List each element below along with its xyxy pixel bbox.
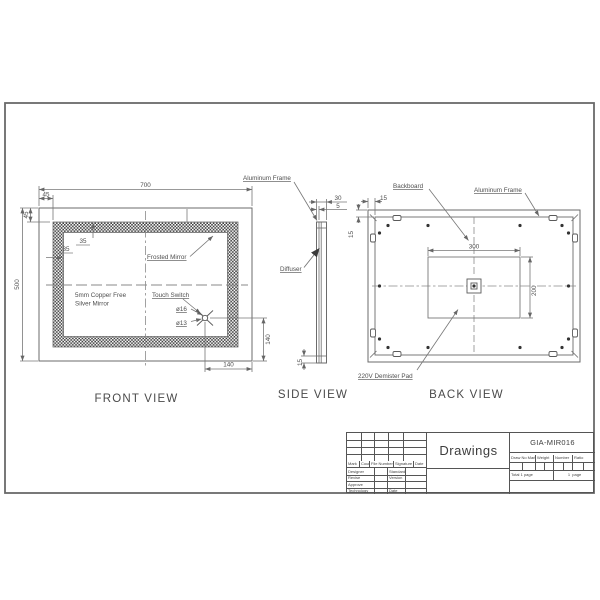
- dim-300-text: 300: [469, 244, 480, 251]
- row-designer: Designer: [347, 469, 374, 475]
- dim-140v-text: 140: [265, 334, 272, 345]
- mirror-spec-line2: Silver Mirror: [75, 301, 109, 308]
- dim-140h-text: 140: [223, 362, 234, 369]
- backboard-label: Backboard: [393, 183, 424, 190]
- diffuser-label: Diffuser: [280, 266, 302, 273]
- row-technology: Technology: [347, 488, 374, 494]
- side-aluminum-frame-leader: [294, 182, 317, 221]
- dim-45v-text: 45: [23, 211, 30, 219]
- drawings-title: Drawings: [427, 433, 510, 469]
- col-header-file-number: File Number: [369, 461, 393, 468]
- dim-35v-text: 35: [79, 238, 87, 245]
- back-view: 300 200 15 15 Backboard Aluminum Frame 2…: [348, 183, 580, 401]
- frosted-mirror-label: Frosted Mirror: [147, 254, 187, 261]
- dim-200-text: 200: [531, 285, 538, 296]
- side-aluminum-frame-label: Aluminum Frame: [243, 175, 291, 182]
- technical-drawing: 700 45 45 500 35 35 Frosted Mirror 5mm: [0, 0, 600, 600]
- dim-5-text: 5: [336, 203, 340, 210]
- junction-box: [467, 279, 481, 293]
- dim-500-text: 500: [14, 279, 21, 290]
- side-view-title: SIDE VIEW: [278, 389, 348, 401]
- total-pages-cell: Total 1 page: [510, 472, 553, 480]
- dim-700: [39, 186, 252, 206]
- title-block-right: GIA-MIR016 Draw No Mark Weight Number Ra…: [510, 433, 595, 494]
- demister-pad-label: 220V Demister Pad: [358, 373, 413, 380]
- side-view: Aluminum Frame 30 5 Diffuser 15 SIDE VIE…: [243, 175, 348, 401]
- front-view-title: FRONT VIEW: [95, 393, 179, 405]
- mirror-spec-line1: 5mm Copper Free: [75, 292, 127, 299]
- col-header-date: Date: [413, 461, 427, 468]
- col-header-mark: Mark: [347, 461, 359, 468]
- row-designer-value: Standard: [388, 469, 405, 475]
- dia13-label: ø13: [176, 320, 187, 327]
- dim-15h-back-text: 15: [380, 195, 388, 202]
- dim-15v-back-text: 15: [348, 230, 355, 238]
- back-aluminum-frame-label: Aluminum Frame: [474, 187, 522, 194]
- model-number: GIA-MIR016: [510, 433, 595, 453]
- touch-switch-label: Touch Switch: [152, 292, 190, 299]
- title-block: Mark Count File Number Signature Date De…: [346, 432, 594, 493]
- col-header-signature: Signature: [393, 461, 413, 468]
- row-revise-value: Version: [388, 475, 405, 481]
- row-revise: Revise: [347, 475, 374, 481]
- row-approve: Approve: [347, 482, 374, 488]
- title-block-left: Mark Count File Number Signature Date De…: [347, 433, 427, 494]
- dim-700-text: 700: [140, 182, 151, 189]
- page-number-cell: 1 page: [553, 472, 595, 480]
- header-weight: Weight: [535, 455, 553, 463]
- dia16-label: ø16: [176, 306, 187, 313]
- header-number: Number: [553, 455, 572, 463]
- col-header-count: Count: [359, 461, 369, 468]
- title-block-middle: Drawings: [427, 433, 510, 494]
- dim-35h-text: 35: [62, 246, 70, 253]
- dim-45h-text: 45: [42, 192, 50, 199]
- dim-15-side-text: 15: [297, 358, 304, 366]
- front-view: 700 45 45 500 35 35 Frosted Mirror 5mm: [14, 182, 272, 405]
- row-technology-value: Date: [388, 488, 405, 494]
- drawing-sheet: 700 45 45 500 35 35 Frosted Mirror 5mm: [0, 0, 600, 600]
- header-draw-no-mark: Draw No Mark: [510, 455, 535, 461]
- dim-30-text: 30: [334, 195, 342, 202]
- dim-500: [20, 208, 38, 361]
- back-view-title: BACK VIEW: [429, 389, 504, 401]
- header-ratio: Ratio: [572, 455, 595, 463]
